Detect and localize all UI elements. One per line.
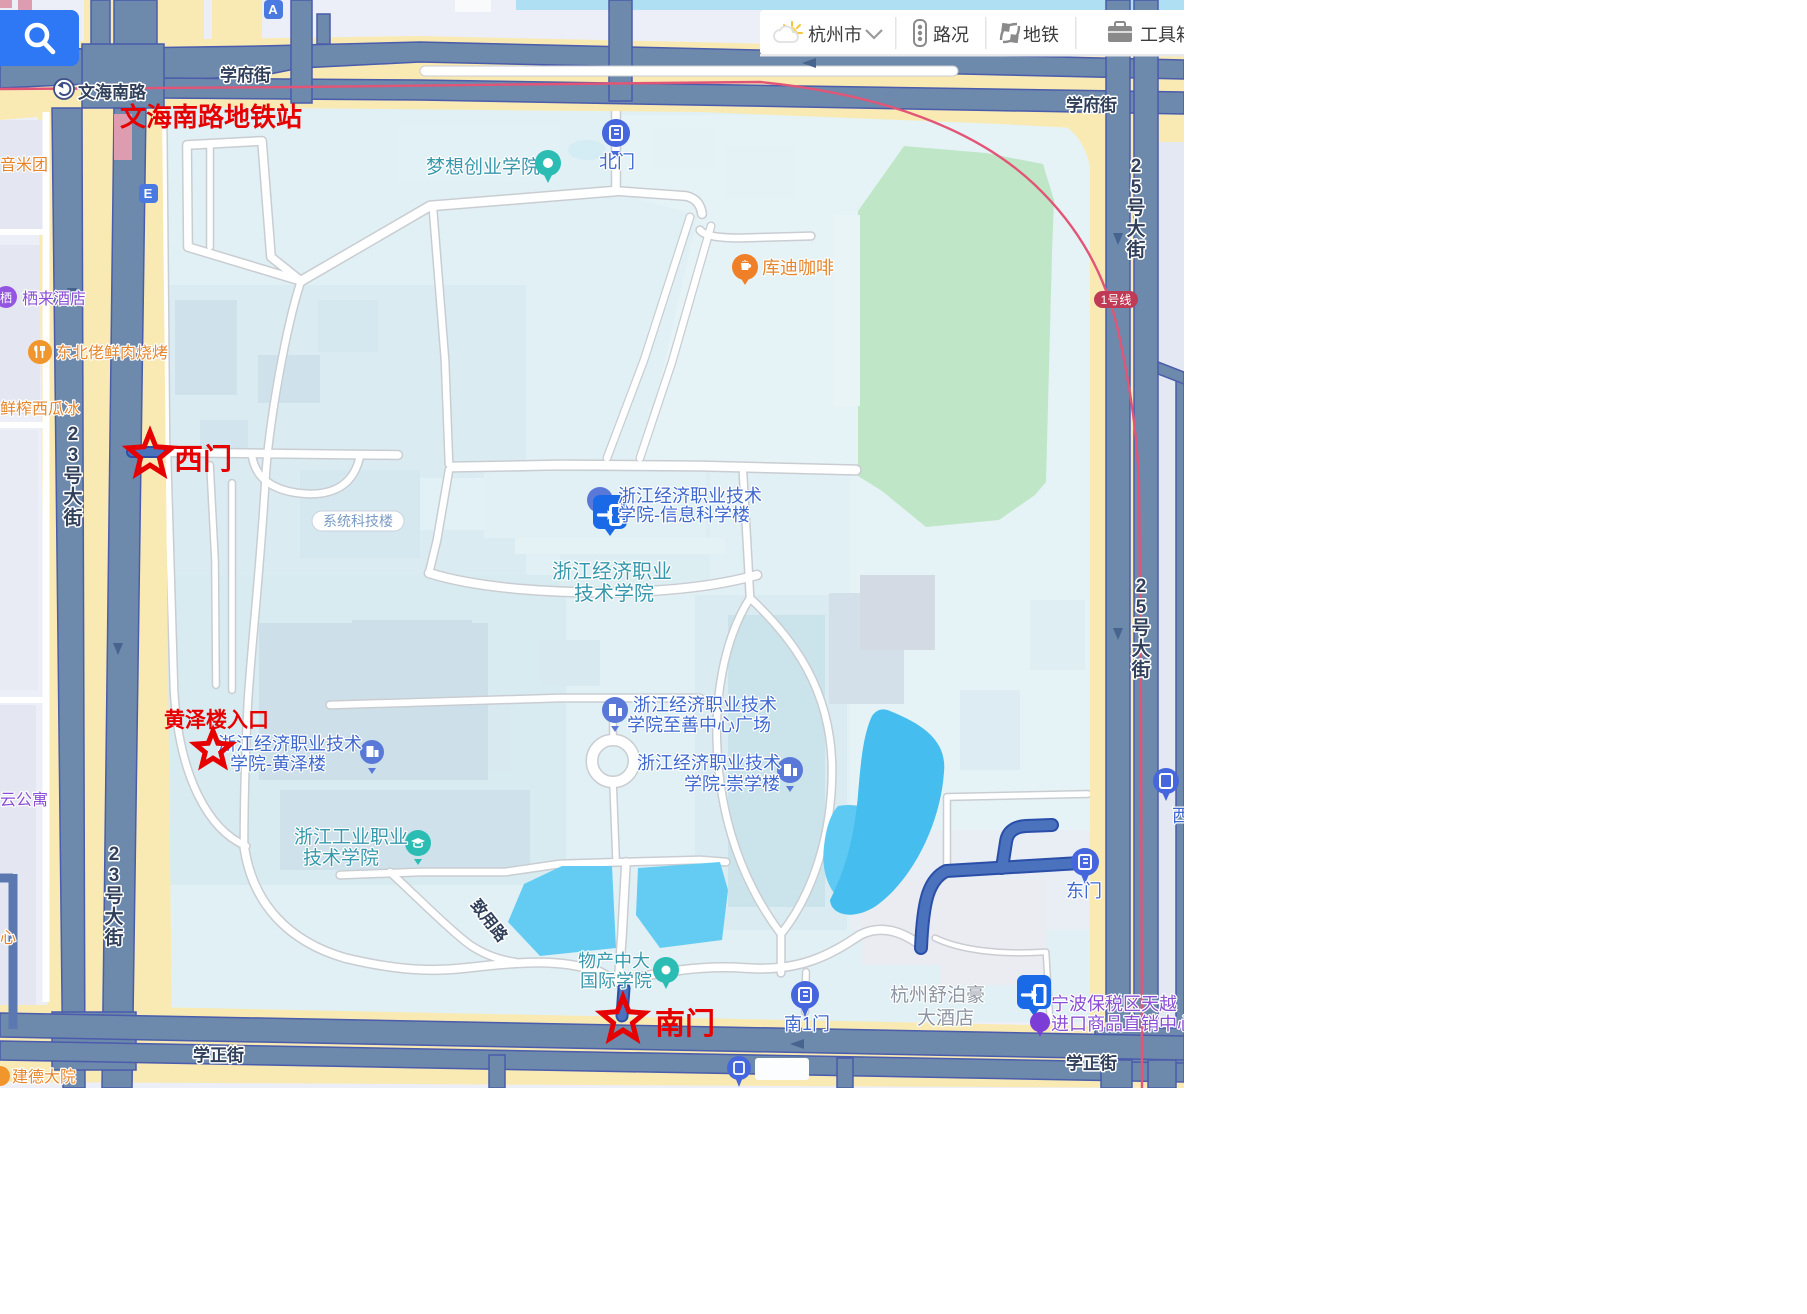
svg-text:学府街: 学府街 [1066, 95, 1117, 115]
svg-text:学院-崇学楼: 学院-崇学楼 [684, 774, 780, 794]
svg-text:技术学院: 技术学院 [303, 847, 379, 869]
svg-text:进口商品直销中心: 进口商品直销中心 [1051, 1014, 1195, 1034]
svg-text:学府街: 学府街 [220, 65, 271, 85]
svg-text:路况: 路况 [933, 25, 969, 45]
svg-text:浙江工业职业: 浙江工业职业 [294, 826, 408, 848]
svg-text:地铁: 地铁 [1023, 25, 1059, 45]
svg-text:南1门: 南1门 [784, 1014, 830, 1034]
svg-text:浙江经济职业技术: 浙江经济职业技术 [218, 734, 362, 754]
svg-text:物产中大: 物产中大 [578, 951, 650, 971]
svg-text:东北佬鲜肉烧烤: 东北佬鲜肉烧烤 [56, 344, 168, 362]
svg-text:浙江经济职业技术: 浙江经济职业技术 [637, 753, 781, 773]
svg-text:鲜榨西瓜冰: 鲜榨西瓜冰 [0, 400, 80, 418]
svg-text:浙江经济职业技术: 浙江经济职业技术 [633, 695, 777, 715]
svg-text:街: 街 [103, 926, 123, 949]
svg-text:大: 大 [104, 905, 123, 928]
svg-text:号: 号 [1131, 617, 1150, 639]
svg-text:2: 2 [1131, 156, 1142, 177]
svg-text:街: 街 [1130, 658, 1150, 681]
svg-text:国际学院: 国际学院 [580, 971, 652, 991]
svg-text:黄泽楼入口: 黄泽楼入口 [164, 708, 269, 732]
svg-text:大: 大 [63, 485, 82, 508]
svg-text:5: 5 [1136, 597, 1147, 618]
svg-text:学正街: 学正街 [193, 1045, 244, 1065]
svg-text:东门: 东门 [1066, 881, 1102, 901]
svg-text:大酒店: 大酒店 [917, 1007, 974, 1029]
svg-text:建德大院: 建德大院 [12, 1068, 76, 1086]
svg-text:2: 2 [68, 424, 79, 445]
svg-text:街: 街 [1125, 238, 1145, 261]
svg-text:文海南路地铁站: 文海南路地铁站 [120, 102, 302, 132]
svg-text:3: 3 [68, 445, 79, 466]
svg-text:浙江经济职业: 浙江经济职业 [552, 560, 672, 583]
svg-text:浙江经济职业技术: 浙江经济职业技术 [618, 486, 762, 506]
svg-text:大: 大 [1131, 637, 1150, 660]
svg-text:技术学院: 技术学院 [574, 582, 654, 605]
svg-text:1号线: 1号线 [1101, 293, 1132, 307]
svg-text:栖: 栖 [0, 290, 12, 305]
svg-text:学院-信息科学楼: 学院-信息科学楼 [618, 505, 750, 525]
svg-text:学院至善中心广场: 学院至善中心广场 [627, 715, 771, 735]
svg-text:学院-黄泽楼: 学院-黄泽楼 [230, 754, 326, 774]
svg-text:号: 号 [104, 885, 123, 907]
svg-text:南门: 南门 [655, 1008, 715, 1041]
svg-text:杭州市: 杭州市 [808, 25, 862, 45]
svg-text:心: 心 [0, 929, 16, 947]
svg-text:西门: 西门 [174, 443, 232, 476]
svg-text:栖来酒店: 栖来酒店 [22, 290, 86, 308]
svg-text:系统科技楼: 系统科技楼 [323, 513, 393, 529]
svg-text:E: E [144, 186, 153, 201]
svg-text:宁波保税区天越: 宁波保税区天越 [1051, 994, 1177, 1014]
svg-text:3: 3 [109, 865, 120, 886]
svg-text:号: 号 [1126, 197, 1145, 219]
svg-text:学正街: 学正街 [1066, 1053, 1117, 1073]
svg-text:街: 街 [62, 506, 82, 529]
svg-text:大: 大 [1126, 217, 1145, 240]
svg-text:音米团: 音米团 [0, 156, 48, 174]
svg-text:5: 5 [1131, 177, 1142, 198]
svg-text:云公寓: 云公寓 [0, 791, 48, 809]
svg-text:文海南路: 文海南路 [78, 82, 147, 102]
svg-text:号: 号 [63, 465, 82, 487]
svg-text:库迪咖啡: 库迪咖啡 [762, 258, 834, 278]
svg-text:2: 2 [1136, 576, 1147, 597]
svg-text:杭州舒泊豪: 杭州舒泊豪 [890, 984, 985, 1006]
svg-text:梦想创业学院: 梦想创业学院 [426, 156, 540, 178]
svg-text:北门: 北门 [599, 152, 635, 172]
svg-text:2: 2 [109, 844, 120, 865]
svg-text:A: A [268, 2, 278, 17]
